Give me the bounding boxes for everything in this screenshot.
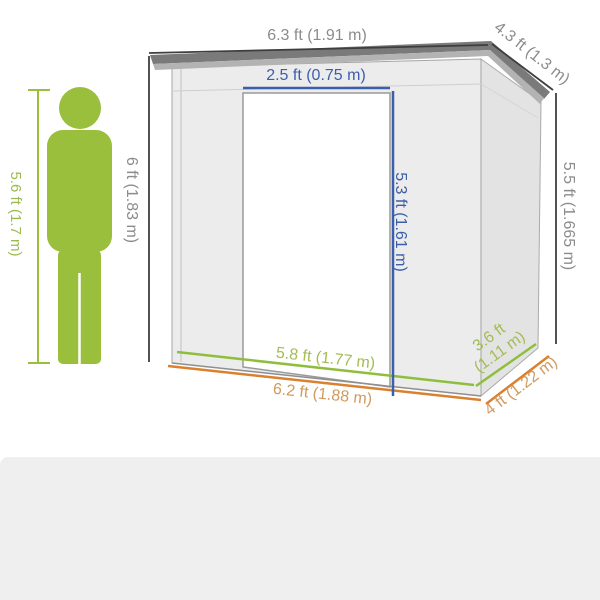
bottom-width-label: 6.2 ft (1.88 m)	[272, 381, 373, 409]
person-torso	[47, 130, 112, 252]
side-height-label: 5.5 ft (1.665 m)	[560, 162, 577, 271]
door-opening	[243, 93, 390, 387]
person-figure	[47, 87, 112, 364]
info-band: Note: Before purchasing this product, it…	[0, 457, 600, 600]
person-height-ruler	[28, 90, 50, 363]
person-height-label: 5.6 ft (1.7 m)	[7, 171, 24, 256]
door-height-label: 5.3 ft (1.61 m)	[392, 172, 409, 272]
overall-height-label: 6 ft (1.83 m)	[123, 157, 140, 243]
door-width-label: 2.5 ft (0.75 m)	[266, 67, 366, 84]
shed-dimension-diagram: 6.3 ft (1.91 m) 4.3 ft (1.3 m) 6 ft (1.8…	[0, 0, 600, 452]
overall-width-label: 6.3 ft (1.91 m)	[267, 27, 367, 44]
product-dimension-image: 6.3 ft (1.91 m) 4.3 ft (1.3 m) 6 ft (1.8…	[0, 0, 600, 600]
person-head	[59, 87, 101, 129]
